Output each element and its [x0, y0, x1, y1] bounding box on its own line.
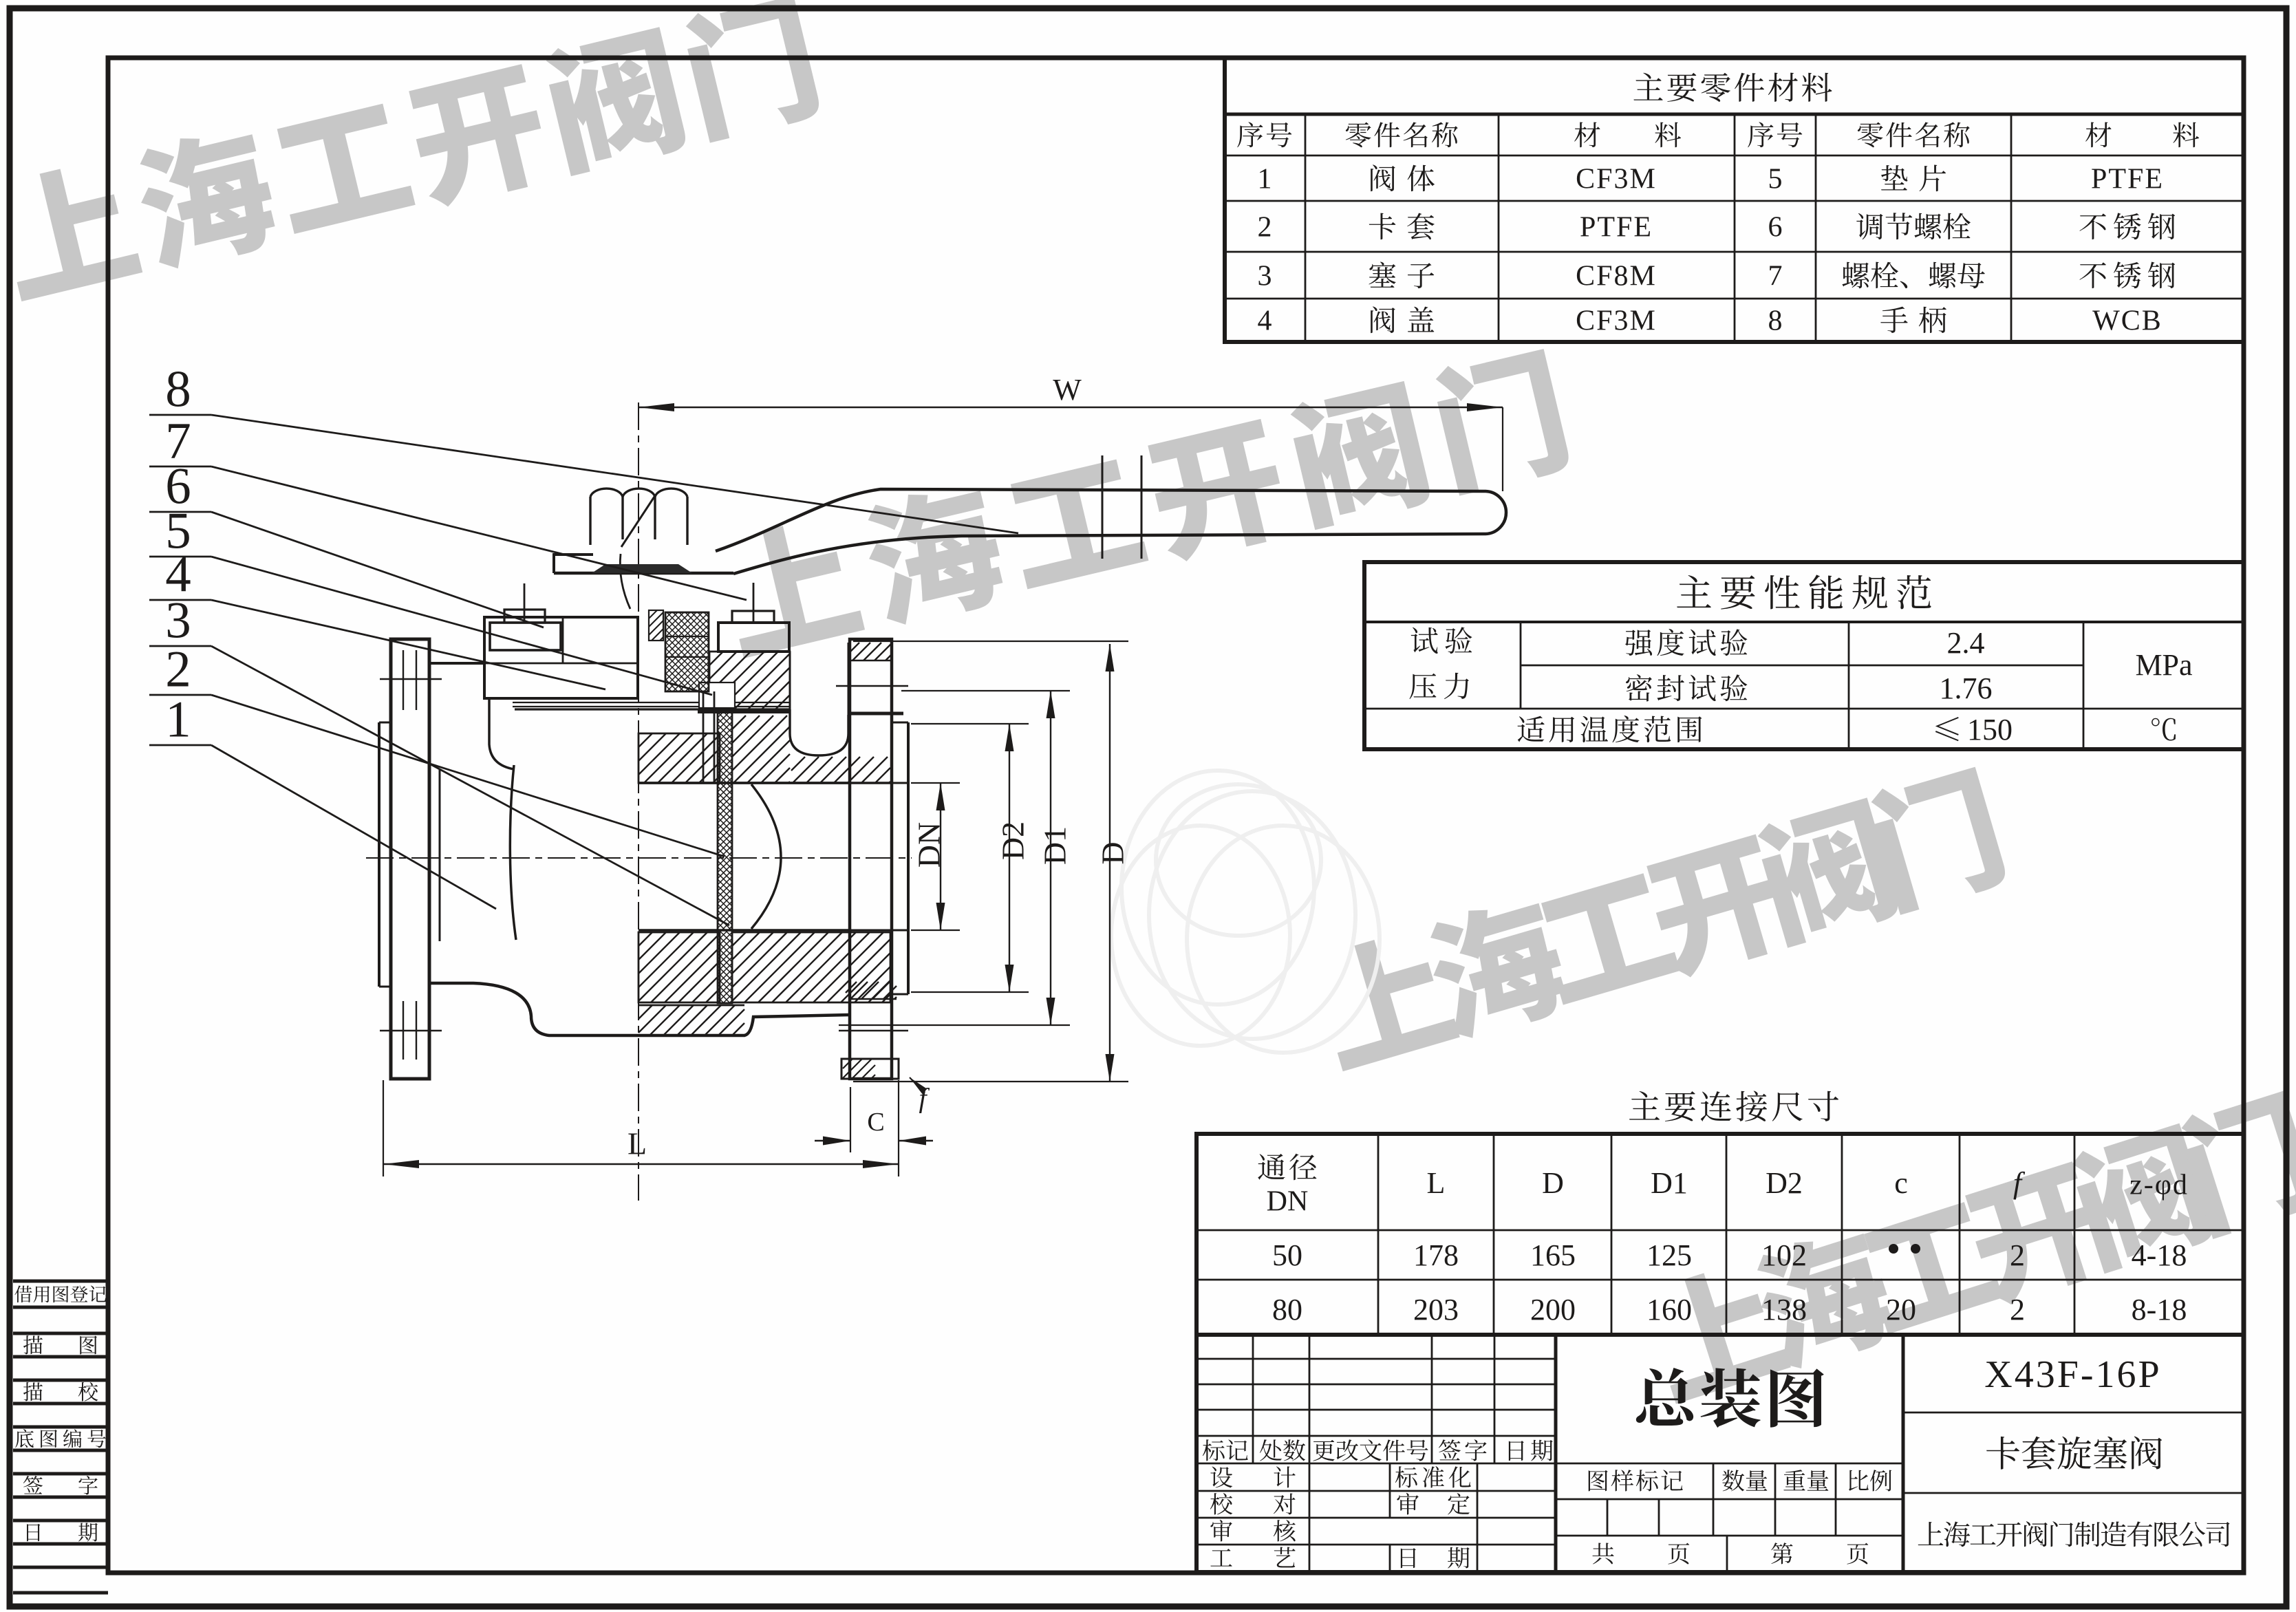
svg-text:5: 5 [1768, 163, 1783, 195]
svg-text:2.4: 2.4 [1947, 626, 1985, 660]
svg-text:2: 2 [165, 641, 191, 698]
svg-text:80: 80 [1272, 1293, 1302, 1326]
svg-text:L: L [627, 1126, 647, 1161]
svg-text:WCB: WCB [2092, 305, 2163, 336]
svg-text:C: C [867, 1108, 884, 1137]
svg-text:6: 6 [1768, 211, 1783, 243]
svg-text:203: 203 [1413, 1293, 1459, 1326]
svg-text:D2: D2 [996, 821, 1031, 860]
svg-text:2: 2 [1258, 211, 1272, 243]
svg-text:D: D [1095, 841, 1130, 864]
svg-text:2: 2 [2010, 1238, 2025, 1272]
svg-text:20: 20 [1886, 1293, 1916, 1326]
svg-text:DN: DN [912, 822, 947, 868]
svg-text:D: D [1542, 1166, 1564, 1200]
svg-text:150: 150 [1967, 713, 2013, 746]
svg-text:1.76: 1.76 [1940, 671, 1993, 705]
svg-text:D2: D2 [1766, 1166, 1803, 1200]
svg-text:8: 8 [1768, 305, 1783, 336]
svg-text:CF3M: CF3M [1576, 163, 1657, 195]
svg-text:DN: DN [1267, 1185, 1309, 1217]
svg-text:8-18: 8-18 [2132, 1293, 2187, 1326]
svg-text:CF3M: CF3M [1576, 305, 1657, 336]
svg-text:D1: D1 [1038, 826, 1073, 865]
svg-text:138: 138 [1761, 1293, 1807, 1326]
svg-text:X43F-16P: X43F-16P [1984, 1353, 2161, 1396]
svg-text:4: 4 [1258, 305, 1272, 336]
svg-text:1: 1 [1258, 163, 1272, 195]
svg-text:102: 102 [1761, 1238, 1807, 1272]
svg-text:L: L [1427, 1166, 1446, 1200]
svg-text:7: 7 [1768, 260, 1783, 292]
svg-text:178: 178 [1413, 1238, 1459, 1272]
svg-text:z-φd: z-φd [2129, 1169, 2189, 1201]
svg-text:c: c [1894, 1166, 1908, 1200]
svg-text:PTFE: PTFE [1580, 211, 1653, 243]
svg-text:3: 3 [1258, 260, 1272, 292]
svg-text:125: 125 [1646, 1238, 1692, 1272]
svg-text:CF8M: CF8M [1576, 260, 1657, 292]
svg-text:50: 50 [1272, 1238, 1302, 1272]
svg-text:200: 200 [1530, 1293, 1576, 1326]
svg-text:2: 2 [2010, 1293, 2025, 1326]
svg-text:8: 8 [165, 361, 191, 418]
svg-text:165: 165 [1530, 1238, 1576, 1272]
svg-text:PTFE: PTFE [2091, 163, 2164, 195]
svg-text:D1: D1 [1651, 1166, 1688, 1200]
svg-text:4-18: 4-18 [2132, 1238, 2187, 1272]
svg-text:1: 1 [165, 691, 191, 749]
svg-text:160: 160 [1646, 1293, 1692, 1326]
svg-text:MPa: MPa [2135, 648, 2192, 682]
svg-text:W: W [1053, 373, 1082, 407]
